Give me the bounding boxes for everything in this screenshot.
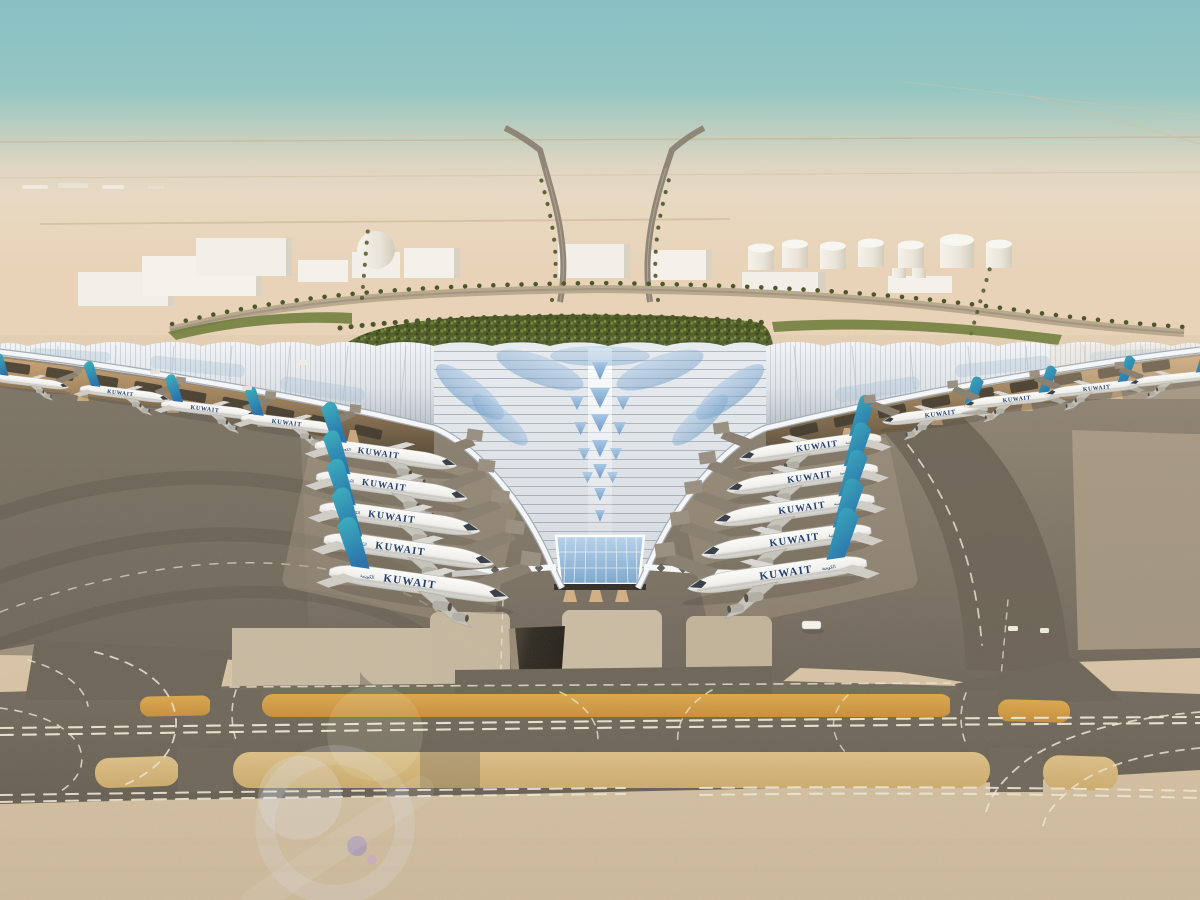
airport-aerial-rendering: KUWAIT KUWAIT KUWAIT KUWAIT الكويتية KUW… [0,0,1200,900]
